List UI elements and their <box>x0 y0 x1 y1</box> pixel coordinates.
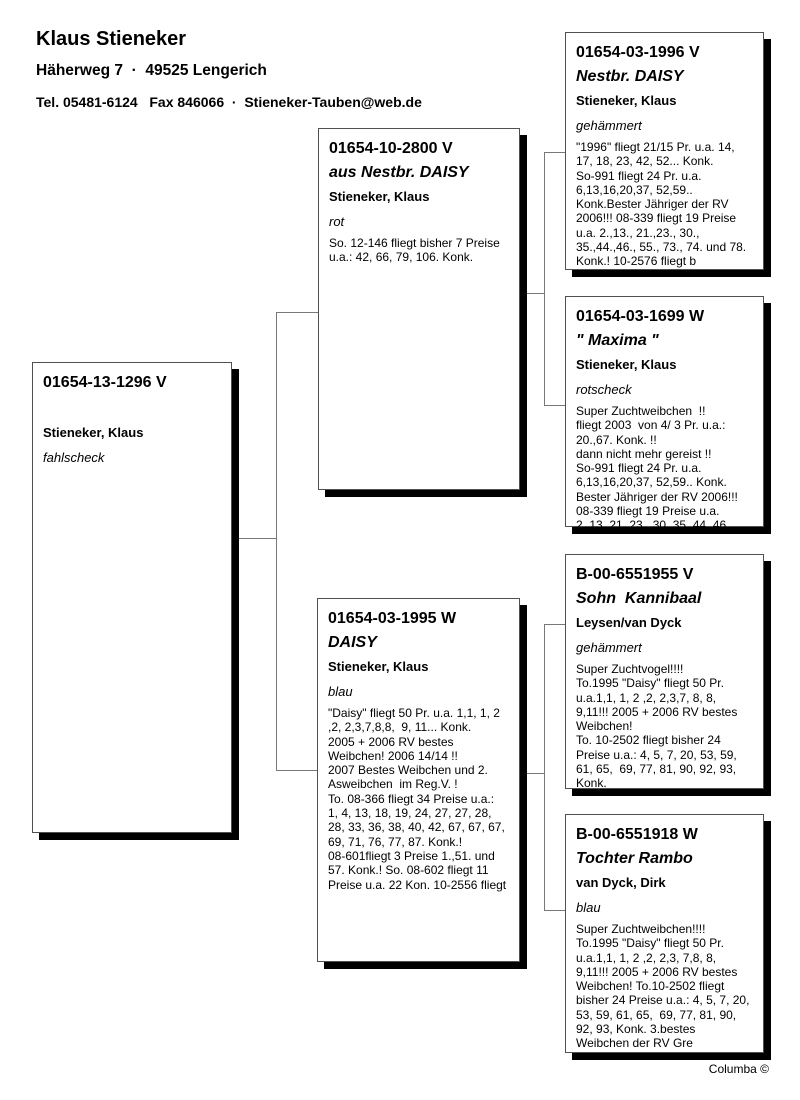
owner-name: Stieneker, Klaus <box>329 189 510 205</box>
feather-color: gehämmert <box>576 118 754 134</box>
feather-color: blau <box>328 684 510 700</box>
ring-number: B-00-6551918 W <box>576 825 754 844</box>
connector-to-sire <box>276 312 318 313</box>
pedigree-box-sire-sire: 01654-03-1996 V Nestbr. DAISY Stieneker,… <box>565 32 764 270</box>
bird-name: Sohn Kannibaal <box>576 589 754 608</box>
feather-color: gehämmert <box>576 640 754 656</box>
ring-number: 01654-03-1996 V <box>576 43 754 62</box>
ring-number: 01654-13-1296 V <box>43 373 222 392</box>
connector-sire-trunk <box>544 152 545 406</box>
connector-subject-feed <box>232 538 276 539</box>
bird-name: Tochter Rambo <box>576 849 754 868</box>
pedigree-box-dam: 01654-03-1995 W DAISY Stieneker, Klaus b… <box>317 598 520 962</box>
owner-name: Stieneker, Klaus <box>328 659 510 675</box>
breeder-contact: Tel. 05481-6124 Fax 846066 · Stieneker-T… <box>36 94 422 110</box>
pedigree-box-dam-sire: B-00-6551955 V Sohn Kannibaal Leysen/van… <box>565 554 764 789</box>
ring-number: 01654-03-1995 W <box>328 609 510 628</box>
performance-notes: "1996" fliegt 21/15 Pr. u.a. 14, 17, 18,… <box>576 140 754 269</box>
ring-number: 01654-03-1699 W <box>576 307 754 326</box>
pedigree-box-dam-dam: B-00-6551918 W Tochter Rambo van Dyck, D… <box>565 814 764 1053</box>
owner-name: Stieneker, Klaus <box>43 425 222 441</box>
owner-name: Stieneker, Klaus <box>576 93 754 109</box>
columba-credit: Columba © <box>709 1062 769 1076</box>
connector-sire-feed <box>520 293 544 294</box>
pedigree-box-sire: 01654-10-2800 V aus Nestbr. DAISY Stiene… <box>318 128 520 490</box>
connector-to-dam-sire <box>544 624 565 625</box>
breeder-name: Klaus Stieneker <box>36 28 186 51</box>
connector-to-sire-sire <box>544 152 565 153</box>
owner-name: van Dyck, Dirk <box>576 875 754 891</box>
feather-color: blau <box>576 900 754 916</box>
ring-number: 01654-10-2800 V <box>329 139 510 158</box>
performance-notes: Super Zuchtvogel!!!! To.1995 "Daisy" fli… <box>576 662 754 791</box>
feather-color: rotscheck <box>576 382 754 398</box>
connector-to-dam-dam <box>544 910 565 911</box>
feather-color: rot <box>329 214 510 230</box>
owner-name: Stieneker, Klaus <box>576 357 754 373</box>
connector-subject-trunk <box>276 312 277 771</box>
ring-number: B-00-6551955 V <box>576 565 754 584</box>
connector-dam-feed <box>520 773 544 774</box>
performance-notes: So. 12-146 fliegt bisher 7 Preise u.a.: … <box>329 236 510 265</box>
bird-name: Nestbr. DAISY <box>576 67 754 86</box>
connector-to-sire-dam <box>544 405 565 406</box>
bird-name: " Maxima " <box>576 331 754 350</box>
connector-to-dam <box>276 770 317 771</box>
pedigree-box-sire-dam: 01654-03-1699 W " Maxima " Stieneker, Kl… <box>565 296 764 527</box>
connector-dam-trunk <box>544 624 545 911</box>
feather-color: fahlscheck <box>43 450 222 466</box>
bird-name: DAISY <box>328 633 510 652</box>
owner-name: Leysen/van Dyck <box>576 615 754 631</box>
breeder-address: Häherweg 7 · 49525 Lengerich <box>36 62 267 80</box>
performance-notes: Super Zuchtweibchen !! fliegt 2003 von 4… <box>576 404 754 533</box>
performance-notes: "Daisy" fliegt 50 Pr. u.a. 1,1, 1, 2 ,2,… <box>328 706 510 892</box>
bird-name: aus Nestbr. DAISY <box>329 163 510 182</box>
pedigree-page: Klaus Stieneker Häherweg 7 · 49525 Lenge… <box>0 0 800 1100</box>
pedigree-box-subject: 01654-13-1296 V Stieneker, Klaus fahlsch… <box>32 362 232 833</box>
performance-notes: Super Zuchtweibchen!!!! To.1995 "Daisy" … <box>576 922 754 1051</box>
